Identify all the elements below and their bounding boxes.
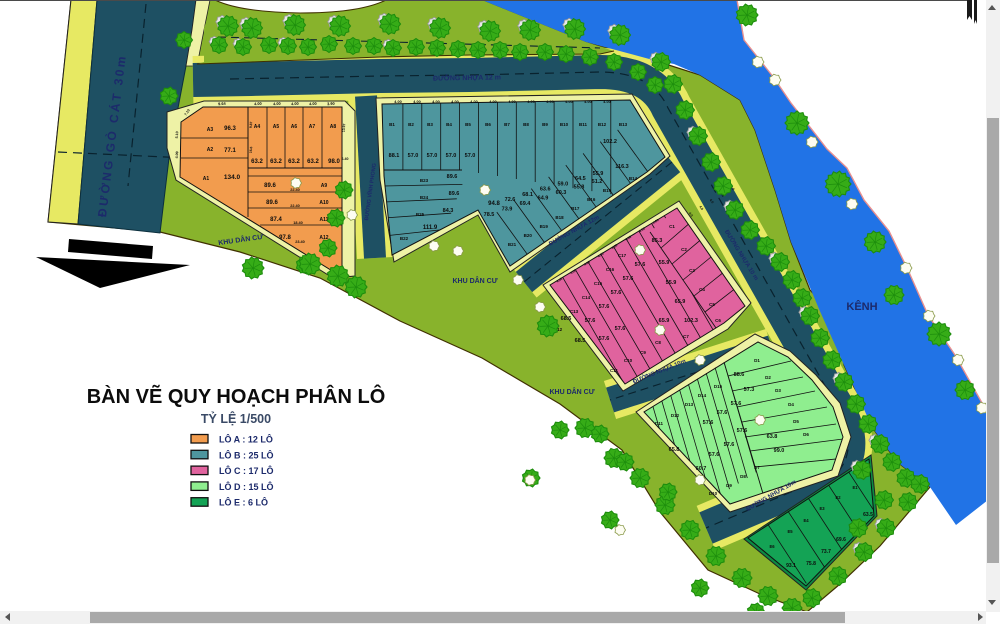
svg-text:B20: B20 [524,233,533,238]
svg-text:D3: D3 [775,388,781,393]
svg-text:A8: A8 [330,124,337,130]
svg-text:B18: B18 [555,215,564,220]
svg-text:B8: B8 [523,122,529,127]
svg-text:B6: B6 [485,122,491,127]
svg-text:4.00: 4.00 [584,100,591,104]
svg-text:63.6: 63.6 [540,187,551,193]
svg-text:22.40: 22.40 [290,204,300,208]
svg-text:57.6: 57.6 [703,420,714,426]
svg-text:A5: A5 [273,124,280,130]
svg-text:78.5: 78.5 [484,212,495,218]
svg-text:63.2: 63.2 [270,159,282,165]
svg-text:89.6: 89.6 [266,200,278,206]
svg-text:134.0: 134.0 [224,174,241,181]
svg-text:23.40: 23.40 [295,240,305,244]
svg-text:D9: D9 [726,483,732,488]
svg-text:57.6: 57.6 [724,442,735,448]
svg-text:63.2: 63.2 [307,159,319,165]
svg-text:102.2: 102.2 [603,139,617,145]
svg-text:5.10: 5.10 [175,131,180,138]
svg-text:B22: B22 [400,236,409,241]
svg-text:A1: A1 [203,176,210,182]
svg-text:C17: C17 [618,253,627,258]
svg-text:C2: C2 [681,247,687,252]
svg-text:57.6: 57.6 [635,262,646,268]
svg-text:116.3: 116.3 [615,164,628,170]
svg-text:E3: E3 [819,506,825,511]
svg-text:69.6: 69.6 [836,537,846,543]
svg-text:57.6: 57.6 [731,401,742,407]
svg-text:B3: B3 [427,122,433,127]
svg-text:D13: D13 [685,402,694,407]
svg-text:D15: D15 [714,384,723,389]
svg-text:57.3: 57.3 [744,387,755,393]
svg-text:57.6: 57.6 [717,410,728,416]
svg-text:4.00: 4.00 [603,100,610,104]
svg-text:D1: D1 [754,358,760,363]
svg-text:B5: B5 [465,122,471,127]
svg-text:D5: D5 [793,419,799,424]
svg-text:LÔ E : 6 LÔ: LÔ E : 6 LÔ [219,497,268,508]
svg-text:A4: A4 [254,124,261,130]
svg-text:4.00: 4.00 [546,100,553,104]
svg-text:B7: B7 [504,122,510,127]
svg-text:57.6: 57.6 [599,304,610,310]
svg-text:4.00: 4.00 [254,102,262,107]
svg-text:57.6: 57.6 [709,452,720,458]
svg-text:65.9: 65.9 [675,299,686,305]
svg-text:C14: C14 [582,295,591,300]
svg-text:D7: D7 [754,465,760,470]
svg-text:C16: C16 [606,267,615,272]
svg-text:57.6: 57.6 [615,326,626,332]
svg-text:D11: D11 [655,421,664,426]
svg-text:A2: A2 [207,147,214,153]
svg-text:63.2: 63.2 [288,159,300,165]
svg-text:4.00: 4.00 [273,102,281,107]
svg-text:102.3: 102.3 [684,318,698,324]
svg-text:B13: B13 [619,122,628,127]
svg-text:73.7: 73.7 [821,549,831,555]
svg-text:B10: B10 [560,122,569,127]
svg-text:13.97: 13.97 [342,123,347,132]
svg-text:C11: C11 [610,368,619,373]
svg-text:57.0: 57.0 [465,153,476,159]
svg-text:C6: C6 [715,318,721,323]
svg-text:B24: B24 [420,195,429,200]
svg-text:57.0: 57.0 [408,153,419,159]
svg-text:55.8: 55.8 [574,185,585,191]
svg-text:85.3: 85.3 [652,238,663,244]
svg-text:75.8: 75.8 [806,561,816,567]
svg-text:59.0: 59.0 [557,181,568,187]
svg-text:B15: B15 [603,188,612,193]
svg-text:96.3: 96.3 [224,126,236,132]
svg-text:3.90: 3.90 [327,102,335,107]
svg-text:D8: D8 [740,474,746,479]
svg-text:84.3: 84.3 [443,208,454,214]
svg-text:72.6: 72.6 [505,197,516,203]
svg-text:C8: C8 [655,340,661,345]
svg-text:89.6: 89.6 [447,174,458,180]
svg-text:BÀN VẼ QUY HOẠCH PHÂN LÔ: BÀN VẼ QUY HOẠCH PHÂN LÔ [87,384,386,408]
svg-text:B4: B4 [446,122,452,127]
svg-text:97.8: 97.8 [279,235,291,241]
svg-text:KHU DÂN CƯ: KHU DÂN CƯ [549,387,594,396]
svg-text:9.64: 9.64 [218,102,227,107]
svg-text:65.9: 65.9 [659,318,670,324]
svg-text:C15: C15 [594,281,603,286]
svg-text:A6: A6 [291,124,298,130]
svg-text:C3: C3 [689,268,695,273]
svg-text:C5: C5 [709,302,715,307]
svg-text:C9: C9 [640,350,646,355]
svg-text:LÔ B : 25 LÔ: LÔ B : 25 LÔ [219,449,274,460]
svg-text:TỶ LỆ 1/500: TỶ LỆ 1/500 [201,411,271,426]
svg-text:63.5: 63.5 [863,512,873,518]
svg-text:57.0: 57.0 [427,153,438,159]
svg-text:51.2: 51.2 [592,179,603,185]
svg-text:87.4: 87.4 [270,217,282,223]
svg-text:4.00: 4.00 [565,100,572,104]
svg-text:9.87: 9.87 [249,121,254,128]
svg-text:C1: C1 [669,224,675,229]
svg-text:60.3: 60.3 [556,190,567,196]
svg-text:63.2: 63.2 [251,159,263,165]
svg-text:A3: A3 [207,127,214,133]
svg-text:57.6: 57.6 [623,276,634,282]
svg-text:77.1: 77.1 [224,148,236,154]
svg-text:D4: D4 [788,402,794,407]
svg-text:18.40: 18.40 [293,221,303,225]
svg-text:4.00: 4.00 [451,100,458,104]
svg-text:E2: E2 [835,495,841,500]
svg-text:B25: B25 [416,212,425,217]
svg-text:73.9: 73.9 [502,207,513,213]
svg-text:B17: B17 [571,206,580,211]
svg-text:B14: B14 [629,176,638,181]
svg-text:B16: B16 [587,197,596,202]
svg-text:B12: B12 [598,122,607,127]
svg-text:63.8: 63.8 [767,434,778,440]
svg-text:88.1: 88.1 [389,153,400,159]
svg-text:4.00: 4.00 [291,102,299,107]
svg-text:89.6: 89.6 [449,191,460,197]
svg-text:55.9: 55.9 [659,260,670,266]
svg-text:D10: D10 [709,491,718,496]
svg-text:98.0: 98.0 [328,159,340,165]
svg-text:E4: E4 [803,518,809,523]
svg-text:B2: B2 [408,122,414,127]
svg-text:E5: E5 [787,529,793,534]
svg-text:89.6: 89.6 [264,183,276,189]
svg-text:55.9: 55.9 [593,171,604,177]
svg-text:4.00: 4.00 [394,100,401,104]
svg-text:C10: C10 [624,358,633,363]
svg-text:69.4: 69.4 [520,201,532,207]
svg-text:6.40: 6.40 [342,157,349,161]
svg-text:64.5: 64.5 [575,176,586,182]
svg-text:57.0: 57.0 [446,153,457,159]
svg-text:57.6: 57.6 [737,428,748,434]
svg-text:D14: D14 [698,393,707,398]
svg-text:68.5: 68.5 [561,316,572,322]
svg-text:16.6: 16.6 [249,146,254,153]
svg-text:C13: C13 [570,309,579,314]
svg-text:68.5: 68.5 [575,338,586,344]
svg-text:4.09: 4.09 [175,151,180,158]
svg-text:94.8: 94.8 [488,201,500,207]
svg-text:57.6: 57.6 [585,318,596,324]
svg-text:99.0: 99.0 [774,448,785,454]
svg-text:B23: B23 [420,178,429,183]
svg-text:D12: D12 [671,413,680,418]
svg-text:4.00: 4.00 [527,100,534,104]
svg-text:LÔ C : 17 LÔ: LÔ C : 17 LÔ [219,465,274,476]
svg-text:B9: B9 [542,122,548,127]
svg-text:KÊNH: KÊNH [846,300,877,313]
svg-text:KHU DÂN CƯ: KHU DÂN CƯ [452,276,497,285]
svg-text:111.9: 111.9 [423,225,438,231]
svg-text:4.00: 4.00 [470,100,477,104]
svg-text:E1: E1 [852,485,858,490]
svg-text:88.6: 88.6 [734,372,745,378]
svg-text:A9: A9 [321,183,328,189]
svg-text:A7: A7 [309,124,316,130]
svg-text:65.8: 65.8 [669,447,680,453]
svg-text:4.00: 4.00 [309,102,317,107]
svg-text:4.00: 4.00 [432,100,439,104]
svg-text:C7: C7 [683,334,689,339]
svg-text:57.6: 57.6 [599,336,610,342]
svg-text:LÔ A : 12 LÔ: LÔ A : 12 LÔ [219,434,273,445]
svg-text:55.9: 55.9 [666,280,677,286]
svg-text:LÔ D : 15 LÔ: LÔ D : 15 LÔ [219,481,274,492]
svg-text:D2: D2 [765,375,771,380]
svg-text:B11: B11 [579,122,588,127]
svg-text:57.6: 57.6 [611,290,622,296]
svg-text:68.1: 68.1 [522,192,533,198]
svg-text:D6: D6 [803,432,809,437]
svg-text:60.7: 60.7 [696,466,707,472]
svg-text:93.1: 93.1 [786,563,796,569]
svg-text:B1: B1 [389,122,395,127]
svg-text:4.00: 4.00 [413,100,420,104]
svg-text:B21: B21 [508,242,517,247]
svg-text:C4: C4 [699,287,705,292]
svg-text:E6: E6 [769,544,775,549]
svg-text:B19: B19 [540,224,549,229]
svg-text:A10: A10 [319,200,328,206]
svg-text:64.9: 64.9 [538,196,549,202]
svg-text:4.00: 4.00 [489,100,496,104]
svg-text:4.00: 4.00 [508,100,515,104]
